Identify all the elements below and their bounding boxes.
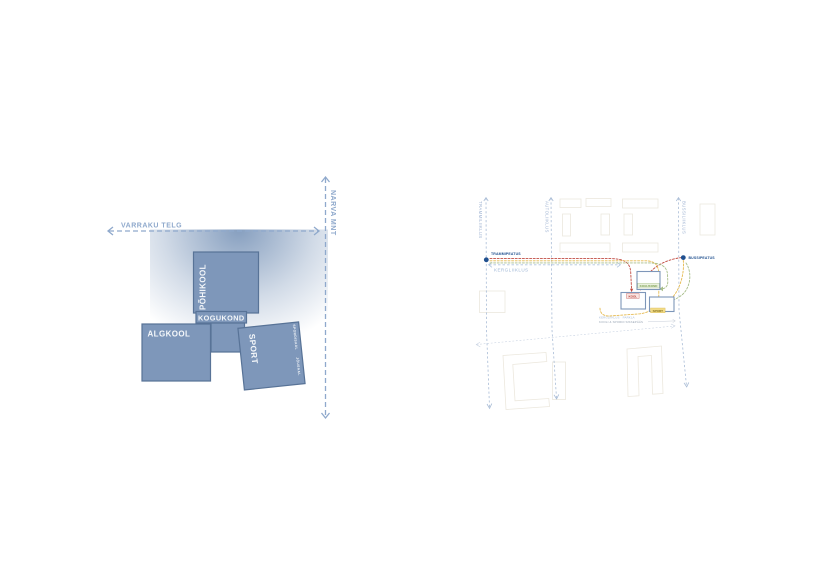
building [624, 214, 633, 235]
street-tram-line [486, 198, 490, 407]
arrow-down-icon [630, 289, 633, 293]
site-boundary-line [477, 326, 675, 345]
building [586, 199, 611, 207]
building [560, 199, 581, 208]
site-plan: TRAMMILIIKLUS AUTOLIIKLUS BUSSILIIKLUS K… [468, 178, 722, 420]
building [700, 204, 715, 235]
bus-stop-label: BUSSIPEATUS [689, 256, 716, 260]
tram-stop-label: TRAMMIPEATUS [491, 252, 521, 256]
block-pohikool-label: PÕHIKOOL [199, 264, 208, 310]
block-kogukond-label: KOGUKOND [198, 313, 245, 322]
building [503, 353, 550, 410]
street-bus-label: BUSSILIIKLUS [682, 201, 687, 234]
building [627, 346, 663, 397]
kool-tag-label: KOOL [628, 294, 637, 298]
sport-tag-label: SPORT [653, 309, 664, 313]
kergliiklus-label: KERGLIIKLUS [494, 268, 529, 273]
tram-stop-dot [484, 257, 489, 262]
building [560, 243, 610, 252]
street-auto-label: AUTOLIIKLUS [545, 201, 550, 233]
concept-diagram: VARRAKU TELG NARVA MNT PÕHIKOOL KOGUKOND… [95, 160, 345, 430]
kogukond-tag-label: KOGUKOND [640, 284, 659, 288]
building [623, 199, 659, 208]
building [480, 291, 506, 313]
street-tram-label: TRAMMILIIKLUS [478, 201, 483, 239]
school-buildings [621, 272, 674, 312]
building [553, 362, 566, 400]
block-sport-group: SPORT SPORDISAAL JÕUSAAL [238, 322, 305, 390]
site-note-line2: KOOLI & SPORDI SISSEPÄÄS [599, 320, 643, 324]
horizontal-axis-label: VARRAKU TELG [121, 223, 182, 230]
building-outlines [480, 199, 716, 410]
bus-stop-dot [681, 255, 686, 260]
building [601, 214, 610, 235]
site-note-arrow-line [648, 321, 675, 322]
street-auto-line [551, 198, 557, 398]
building [623, 243, 659, 252]
page-canvas: VARRAKU TELG NARVA MNT PÕHIKOOL KOGUKOND… [0, 0, 830, 576]
vertical-axis-label: NARVA MNT [329, 190, 336, 236]
building [563, 214, 571, 236]
block-algkool-label: ALGKOOL [148, 330, 191, 339]
